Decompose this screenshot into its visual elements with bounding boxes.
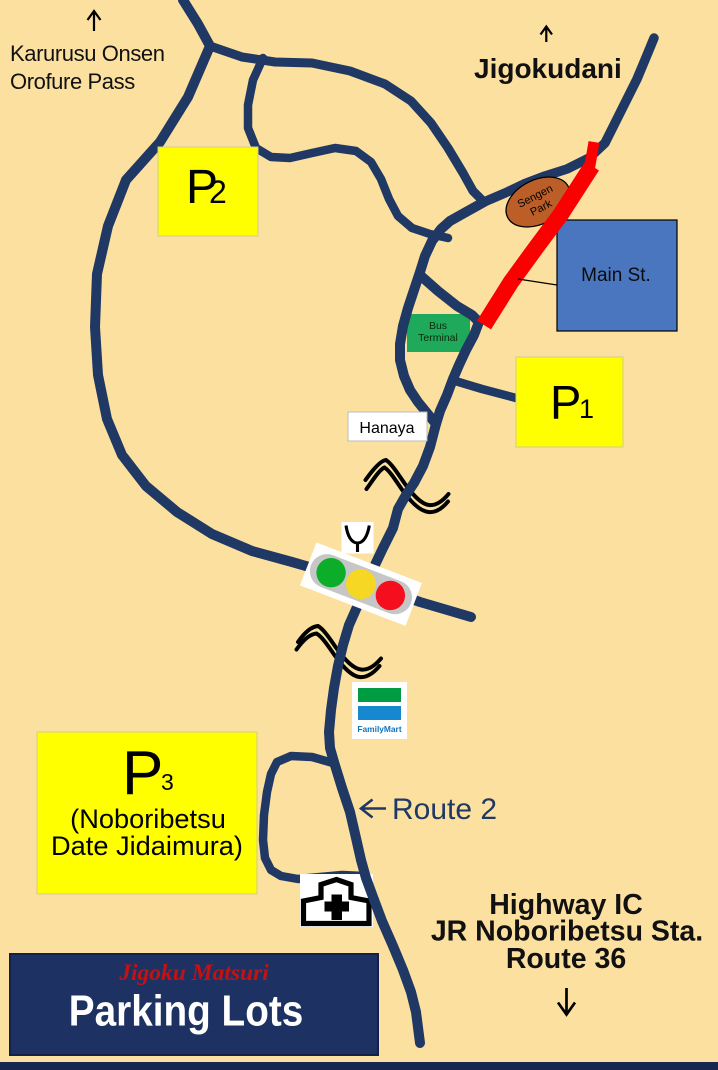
svg-text:FamilyMart: FamilyMart [357,724,401,734]
svg-text:Route 36: Route 36 [506,943,626,975]
svg-text:Jigokudani: Jigokudani [474,53,622,84]
svg-text:Jigoku Matsuri: Jigoku Matsuri [118,960,269,986]
svg-text:Parking Lots: Parking Lots [69,985,303,1035]
svg-text:Main St.: Main St. [581,265,651,286]
svg-text:Hanaya: Hanaya [359,420,414,437]
svg-text:Orofure Pass: Orofure Pass [10,69,135,94]
svg-text:3: 3 [161,769,174,795]
svg-text:2: 2 [209,174,227,210]
svg-text:P: P [122,739,163,808]
svg-text:Terminal: Terminal [418,332,458,344]
svg-text:Date Jidaimura): Date Jidaimura) [51,830,243,861]
svg-text:Route 2: Route 2 [392,793,497,826]
svg-text:P: P [550,376,581,429]
svg-text:1: 1 [579,394,594,424]
svg-text:Karurusu Onsen: Karurusu Onsen [10,41,165,66]
svg-text:Bus: Bus [429,320,447,332]
